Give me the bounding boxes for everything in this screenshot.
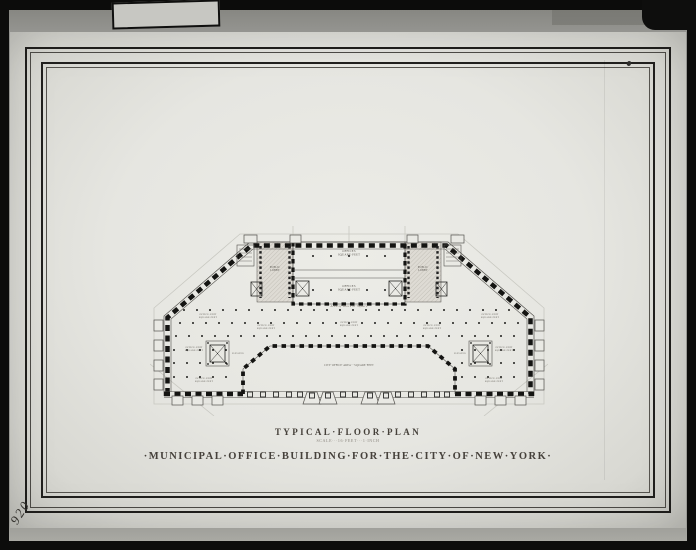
colonnade-plinth	[422, 392, 427, 397]
corner-notch	[642, 0, 696, 30]
colonnade-plinth	[353, 392, 358, 397]
plan-label-public-lobby-right: PUBLICLOBBY	[418, 266, 428, 272]
side-porch	[154, 340, 163, 351]
colonnade-plinth	[341, 392, 346, 397]
colonnade-plinth	[435, 392, 440, 397]
plan-label-office-unit-bottom-right: OFFICE·UNITSQUARE·FEET	[485, 377, 504, 383]
colonnade-plinth	[287, 392, 292, 397]
entrance-cap	[244, 235, 257, 243]
entrance-cap	[451, 235, 464, 243]
drawing-title: ·MUNICIPAL·OFFICE·BUILDING·FOR·THE·CITY·…	[40, 451, 656, 462]
colonnade-plinth	[248, 392, 253, 397]
plan-label-office-unit-low-right: OFFICE·UNITSQUARE·FEET	[495, 346, 514, 352]
side-porch	[535, 320, 544, 331]
colonnade-plinth	[261, 392, 266, 397]
plan-label-office-unit-mid-left: OFFICE·UNITSQUARE·FEET	[257, 324, 276, 330]
plan-label-offices-top: OFFICESSQUARE·FEET	[338, 249, 360, 257]
colonnade-plinth	[445, 392, 450, 397]
entrance-cap	[290, 235, 301, 243]
bottom-porch	[192, 396, 203, 405]
plan-label-elevator-right: ELEVATOR	[454, 352, 466, 355]
bottom-porch	[495, 396, 506, 405]
side-porch	[154, 320, 163, 331]
colonnade-plinth	[409, 392, 414, 397]
side-porch	[535, 360, 544, 371]
film-strip-artifact	[112, 0, 221, 30]
bottom-porch	[515, 396, 526, 405]
entrance-cap	[407, 235, 418, 243]
bottom-porch	[212, 396, 223, 405]
plan-label-office-unit-upper-left: OFFICE·UNITSQUARE·FEET	[199, 313, 218, 319]
side-porch	[535, 379, 544, 390]
archival-photograph: OFFICESSQUARE·FEETOFFICESSQUARE·FEETPUBL…	[0, 0, 696, 550]
court-wall-piers	[243, 346, 455, 394]
colonnade-plinth	[298, 392, 303, 397]
exterior-wall-piers	[168, 246, 531, 395]
plan-label-office-unit-upper-right: OFFICE·UNITSQUARE·FEET	[481, 313, 500, 319]
plan-label-elevator-left: ELEVATOR	[232, 352, 244, 355]
side-porch	[535, 340, 544, 351]
plan-label-script-annotation: ·Area·of·Block·or·Square·	[329, 304, 368, 308]
plan-scale-note: SCALE···16·FEET···1·INCH	[48, 438, 648, 443]
plan-label-office-unit-bottom-left: OFFICE·UNITSQUARE·FEET	[195, 377, 214, 383]
plan-label-public-lobby-left: PUBLICLOBBY	[270, 266, 280, 272]
plan-title: TYPICAL·FLOOR·PLAN	[48, 427, 648, 437]
floor-plan: OFFICESSQUARE·FEETOFFICESSQUARE·FEETPUBL…	[150, 226, 548, 416]
plan-label-city-office-area: CITY·OFFICE·AREA···SQUARE·FEET	[324, 364, 374, 367]
plan-label-office-unit-low-left: OFFICE·UNITSQUARE·FEET	[185, 346, 204, 352]
colonnade-plinth	[396, 392, 401, 397]
paper-crease	[604, 60, 605, 480]
plan-label-office-unit-mid-right: OFFICE·UNITSQUARE·FEET	[423, 324, 442, 330]
plan-label-office-unit-mid-center: OFFICE·UNITSQUARE·FEET	[340, 321, 359, 327]
colonnade-plinth	[274, 392, 279, 397]
side-porch	[154, 379, 163, 390]
side-porch	[154, 360, 163, 371]
bottom-porch	[475, 396, 486, 405]
plan-label-offices-bottom: OFFICESSQUARE·FEET	[338, 284, 360, 292]
bottom-porch	[172, 396, 183, 405]
